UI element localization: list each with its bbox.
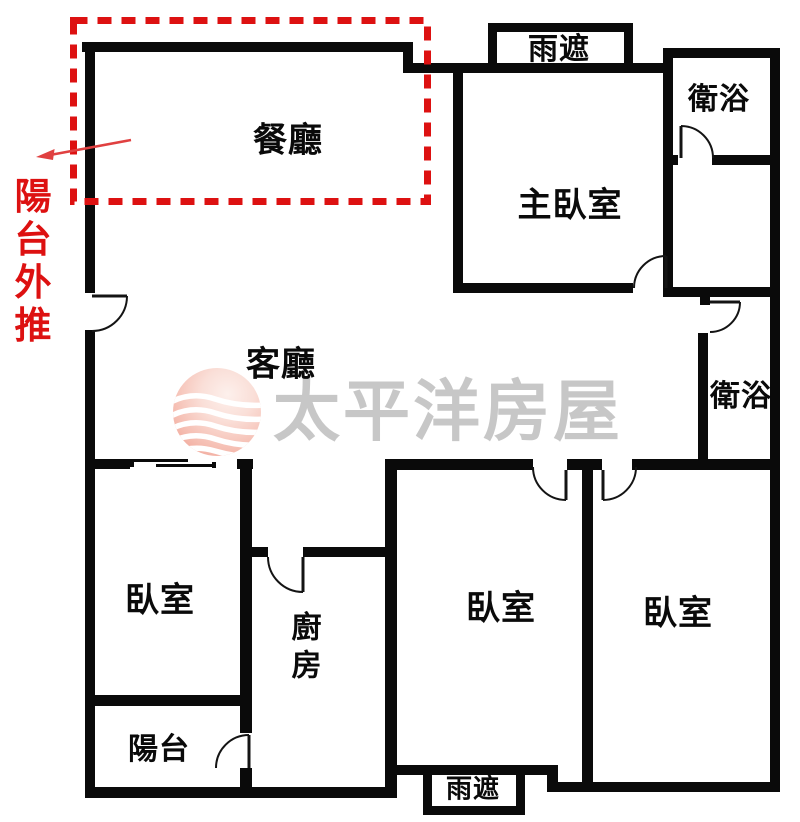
balcony-extension-arrow bbox=[36, 140, 131, 160]
room-label-dining: 餐廳 bbox=[253, 113, 323, 162]
room-label-bathroom-top: 衛浴 bbox=[688, 74, 750, 118]
room-label-bedroom-mid: 臥室 bbox=[466, 581, 536, 630]
room-label-bathroom-mid: 衛浴 bbox=[710, 371, 772, 415]
door-arcs bbox=[92, 126, 740, 768]
room-label-kitchen: 廚房 bbox=[289, 610, 325, 685]
floorplan: 太平洋房屋 bbox=[0, 0, 800, 822]
balcony-extension-note: 陽台外推 bbox=[10, 176, 56, 348]
room-label-master-bedroom: 主臥室 bbox=[518, 178, 623, 227]
window-left-bedroom bbox=[130, 459, 216, 468]
room-label-rain-top: 雨遮 bbox=[528, 24, 590, 68]
room-label-bedroom-left: 臥室 bbox=[125, 573, 195, 622]
floorplan-walls-graphic bbox=[0, 0, 800, 822]
room-label-bedroom-right: 臥室 bbox=[643, 586, 713, 635]
room-label-rain-bottom: 雨遮 bbox=[446, 769, 500, 806]
room-label-balcony: 陽台 bbox=[128, 724, 190, 768]
room-label-living: 客廳 bbox=[246, 337, 316, 386]
